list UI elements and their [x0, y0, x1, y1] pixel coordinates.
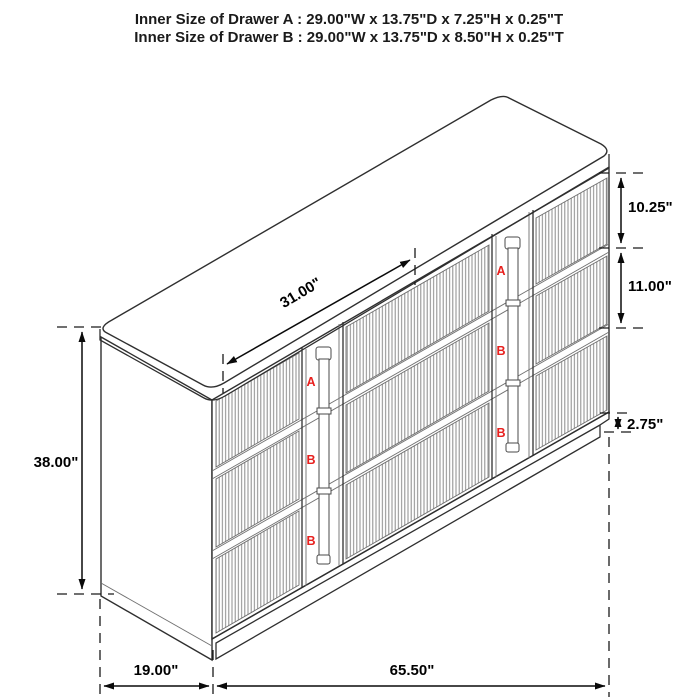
diagram-canvas: Inner Size of Drawer A : 29.00"W x 13.75…	[0, 0, 700, 700]
handle-joint	[317, 488, 331, 494]
dimension-value: 19.00"	[134, 662, 179, 679]
dimension-value: 38.00"	[34, 454, 79, 471]
dimension-value: 10.25"	[628, 199, 673, 216]
dimension-drawer-heights: 10.25" 11.00"	[599, 173, 673, 328]
drawer-label: A	[306, 375, 315, 389]
drawer-label: B	[306, 534, 315, 548]
handle-foot	[317, 555, 330, 564]
dimension-value: 2.75"	[627, 416, 663, 433]
title-line-b: Inner Size of Drawer B : 29.00"W x 13.75…	[134, 29, 563, 46]
handle-cap	[316, 347, 331, 360]
handle-bar	[319, 359, 329, 558]
drawer-label: B	[306, 453, 315, 467]
drawer-label: B	[496, 426, 505, 440]
handle-joint	[506, 300, 520, 306]
fluted-column-left	[216, 353, 299, 633]
title-line-a: Inner Size of Drawer A : 29.00"W x 13.75…	[135, 11, 563, 28]
furniture-dimension-diagram: Inner Size of Drawer A : 29.00"W x 13.75…	[0, 0, 700, 700]
handle-cap	[505, 237, 520, 249]
handle-foot	[506, 443, 519, 452]
drawer-label: B	[496, 344, 505, 358]
cabinet-drawing: A B B A B B	[100, 96, 609, 660]
drawer-label: A	[496, 264, 505, 278]
dimension-value: 65.50"	[390, 662, 435, 679]
handle-bar	[508, 248, 518, 445]
fluted-column-right	[536, 178, 607, 450]
side-panel	[101, 337, 212, 660]
dimension-value: 11.00"	[628, 278, 672, 295]
handle-joint	[506, 380, 520, 386]
handle-joint	[317, 408, 331, 414]
